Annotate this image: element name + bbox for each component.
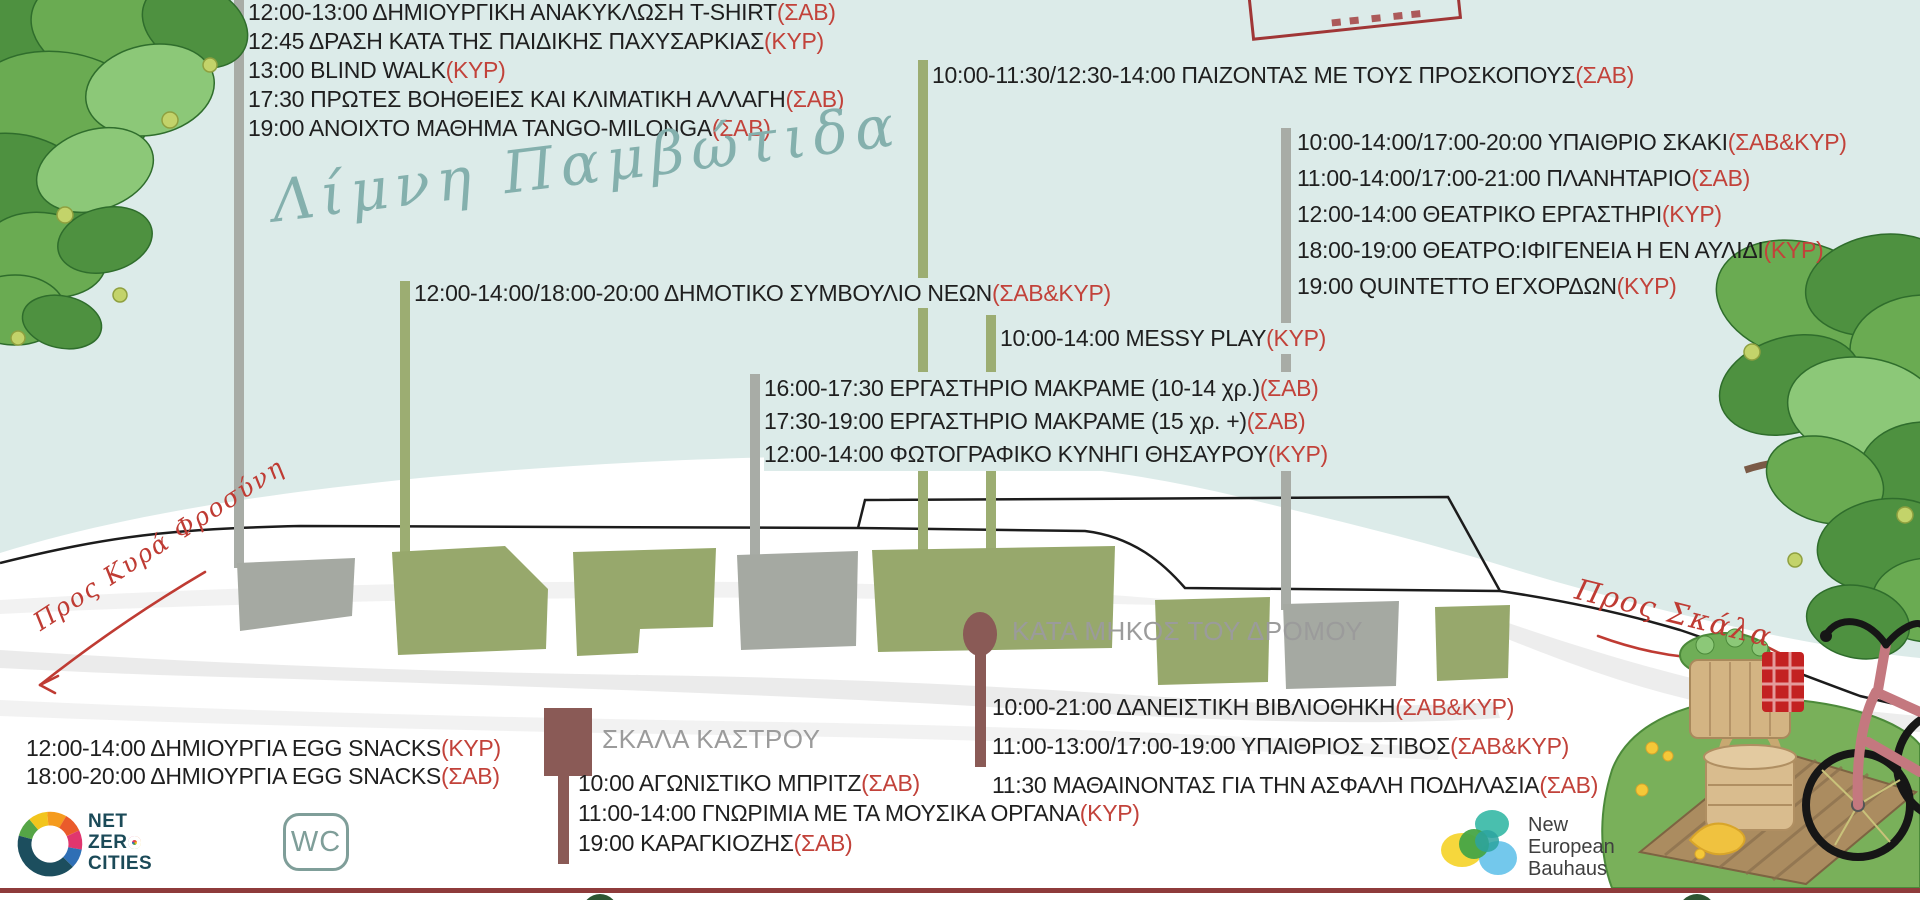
day-tag: (ΣΑΒ&ΚΥΡ): [1728, 129, 1847, 155]
nzc-line2: ZER: [88, 832, 152, 853]
nzc-line3: CITIES: [88, 853, 152, 874]
plot-gray-2: [737, 551, 858, 650]
day-tag: (ΚΥΡ): [1662, 201, 1722, 227]
event-line: 10:00-11:30/12:30-14:00 ΠΑΙΖΟΝΤΑΣ ΜΕ ΤΟΥ…: [932, 60, 1634, 90]
event-line: 12:00-14:00 ΘΕΑΤΡΙΚΟ ΕΡΓΑΣΤΗΡΙ(ΚΥΡ): [1297, 196, 1847, 232]
event-line: 11:30 ΜΑΘΑΙΝΟΝΤΑΣ ΓΙΑ ΤΗΝ ΑΣΦΑΛΗ ΠΟΔΗΛΑΣ…: [992, 766, 1598, 805]
day-tag: (ΣΑΒ&ΚΥΡ): [1395, 694, 1514, 720]
event-line: 18:00-19:00 ΘΕΑΤΡΟ:ΙΦΙΓΕΝΕΙΑ Η ΕΝ ΑΥΛΙΔΙ…: [1297, 232, 1847, 268]
plot-green-5: [1435, 605, 1510, 681]
event-line: 18:00-20:00 ΔΗΜΙΟΥΡΓΙΑ EGG SNACKS(ΣΑΒ): [26, 762, 501, 790]
day-tag: (ΣΑΒ&ΚΥΡ): [992, 280, 1111, 306]
event-block-along-road: 10:00-21:00 ΔΑΝΕΙΣΤΙΚΗ ΒΙΒΛΙΟΘΗΚΗ(ΣΑΒ&ΚΥ…: [992, 688, 1598, 805]
neb-line2: European: [1528, 836, 1615, 858]
day-tag: (ΣΑΒ): [861, 770, 920, 796]
event-line: 12:00-13:00 ΔΗΜΙΟΥΡΓΙΚΗ ΑΝΑΚΥΚΛΩΣΗ T-SHI…: [248, 0, 844, 27]
zero-o-icon: [128, 836, 141, 849]
day-tag: (ΣΑΒ): [1539, 772, 1598, 798]
day-tag: (ΣΑΒ): [441, 763, 500, 789]
event-block-macrame: 16:00-17:30 ΕΡΓΑΣΤΗΡΙΟ ΜΑΚΡΑΜΕ (10-14 χρ…: [764, 372, 1328, 471]
event-line: 13:00 BLIND WALK(ΚΥΡ): [248, 56, 844, 85]
day-tag: (ΚΥΡ): [1764, 237, 1824, 263]
nzc-line1: NET: [88, 811, 152, 832]
event-line: 12:00-14:00 ΔΗΜΙΟΥΡΓΙΑ EGG SNACKS(ΚΥΡ): [26, 734, 501, 762]
day-tag: (ΣΑΒ): [1260, 375, 1319, 401]
netzerocities-logo-text: NET ZER CITIES: [88, 811, 152, 874]
day-tag: (ΚΥΡ): [446, 57, 506, 83]
event-line: 19:00 ΚΑΡΑΓΚΙΟΖΗΣ(ΣΑΒ): [578, 828, 1140, 858]
event-line: 10:00-14:00/17:00-20:00 ΥΠΑΙΘΡΙΟ ΣΚΑΚΙ(Σ…: [1297, 124, 1847, 160]
event-line: 12:00-14:00 ΦΩΤΟΓΡΑΦΙΚΟ ΚΥΝΗΓΙ ΘΗΣΑΥΡΟΥ(…: [764, 438, 1328, 471]
event-line: 10:00-14:00 MESSY PLAY(ΚΥΡ): [1000, 323, 1326, 354]
leader-bar-right: [1281, 128, 1291, 610]
day-tag: (ΣΑΒ): [1575, 62, 1634, 88]
event-line: 16:00-17:30 ΕΡΓΑΣΤΗΡΙΟ ΜΑΚΡΑΜΕ (10-14 χρ…: [764, 372, 1328, 405]
day-tag: (ΚΥΡ): [1268, 441, 1328, 467]
event-block-egg-snacks: 12:00-14:00 ΔΗΜΙΟΥΡΓΙΑ EGG SNACKS(ΚΥΡ)18…: [26, 734, 501, 790]
neb-logo-text: New European Bauhaus: [1528, 814, 1615, 880]
event-line: 11:00-14:00/17:00-21:00 ΠΛΑΝΗΤΑΡΙΟ(ΣΑΒ): [1297, 160, 1847, 196]
event-block-messy-play: 10:00-14:00 MESSY PLAY(ΚΥΡ): [1000, 323, 1326, 354]
day-tag: (ΚΥΡ): [1617, 273, 1677, 299]
day-tag: (ΣΑΒ): [794, 830, 853, 856]
event-block-scouts: 10:00-11:30/12:30-14:00 ΠΑΙΖΟΝΤΑΣ ΜΕ ΤΟΥ…: [932, 60, 1634, 90]
kastro-stairs-label: ΣΚΑΛΑ ΚΑΣΤΡΟΥ: [602, 724, 820, 755]
event-line: 11:00-13:00/17:00-19:00 ΥΠΑΙΘΡΙΟΣ ΣΤΙΒΟΣ…: [992, 727, 1598, 766]
event-line: 19:00 QUINTETTO ΕΓΧΟΡΔΩΝ(ΚΥΡ): [1297, 268, 1847, 304]
neb-logo-icon: [1440, 808, 1530, 888]
event-block-youth-council: 12:00-14:00/18:00-20:00 ΔΗΜΟΤΙΚΟ ΣΥΜΒΟΥΛ…: [414, 278, 1111, 308]
event-line: 12:45 ΔΡΑΣΗ ΚΑΤΑ ΤΗΣ ΠΑΙΔΙΚΗΣ ΠΑΧΥΣΑΡΚΙΑ…: [248, 27, 844, 56]
lakefront-events-map: 12:00-13:00 ΔΗΜΙΟΥΡΓΙΚΗ ΑΝΑΚΥΚΛΩΣΗ T-SHI…: [0, 0, 1920, 900]
day-tag: (ΚΥΡ): [441, 735, 501, 761]
neb-line3: Bauhaus: [1528, 858, 1615, 880]
day-tag: (ΣΑΒ&ΚΥΡ): [1450, 733, 1569, 759]
event-block-right: 10:00-14:00/17:00-20:00 ΥΠΑΙΘΡΙΟ ΣΚΑΚΙ(Σ…: [1297, 124, 1847, 304]
day-tag: (ΣΑΒ): [1691, 165, 1750, 191]
event-line: 10:00-21:00 ΔΑΝΕΙΣΤΙΚΗ ΒΙΒΛΙΟΘΗΚΗ(ΣΑΒ&ΚΥ…: [992, 688, 1598, 727]
event-line: 17:30-19:00 ΕΡΓΑΣΤΗΡΙΟ ΜΑΚΡΑΜΕ (15 χρ. +…: [764, 405, 1328, 438]
leader-bar-youth: [400, 281, 410, 556]
leader-bar-macrame: [750, 374, 760, 559]
day-tag: (ΚΥΡ): [1266, 325, 1326, 351]
day-tag: (ΣΑΒ): [777, 0, 836, 25]
along-road-label: ΚΑΤΑ ΜΗΚΟΣ ΤΟΥ ΔΡΟΜΟΥ: [1012, 616, 1363, 647]
day-tag: (ΣΑΒ): [1247, 408, 1306, 434]
neb-line1: New: [1528, 814, 1615, 836]
day-tag: (ΚΥΡ): [764, 28, 824, 54]
netzerocities-logo-icon: [14, 808, 86, 880]
event-line: 12:00-14:00/18:00-20:00 ΔΗΜΟΤΙΚΟ ΣΥΜΒΟΥΛ…: [414, 278, 1111, 308]
wc-sign: WC: [283, 813, 349, 871]
bottom-border-line: [0, 888, 1920, 893]
